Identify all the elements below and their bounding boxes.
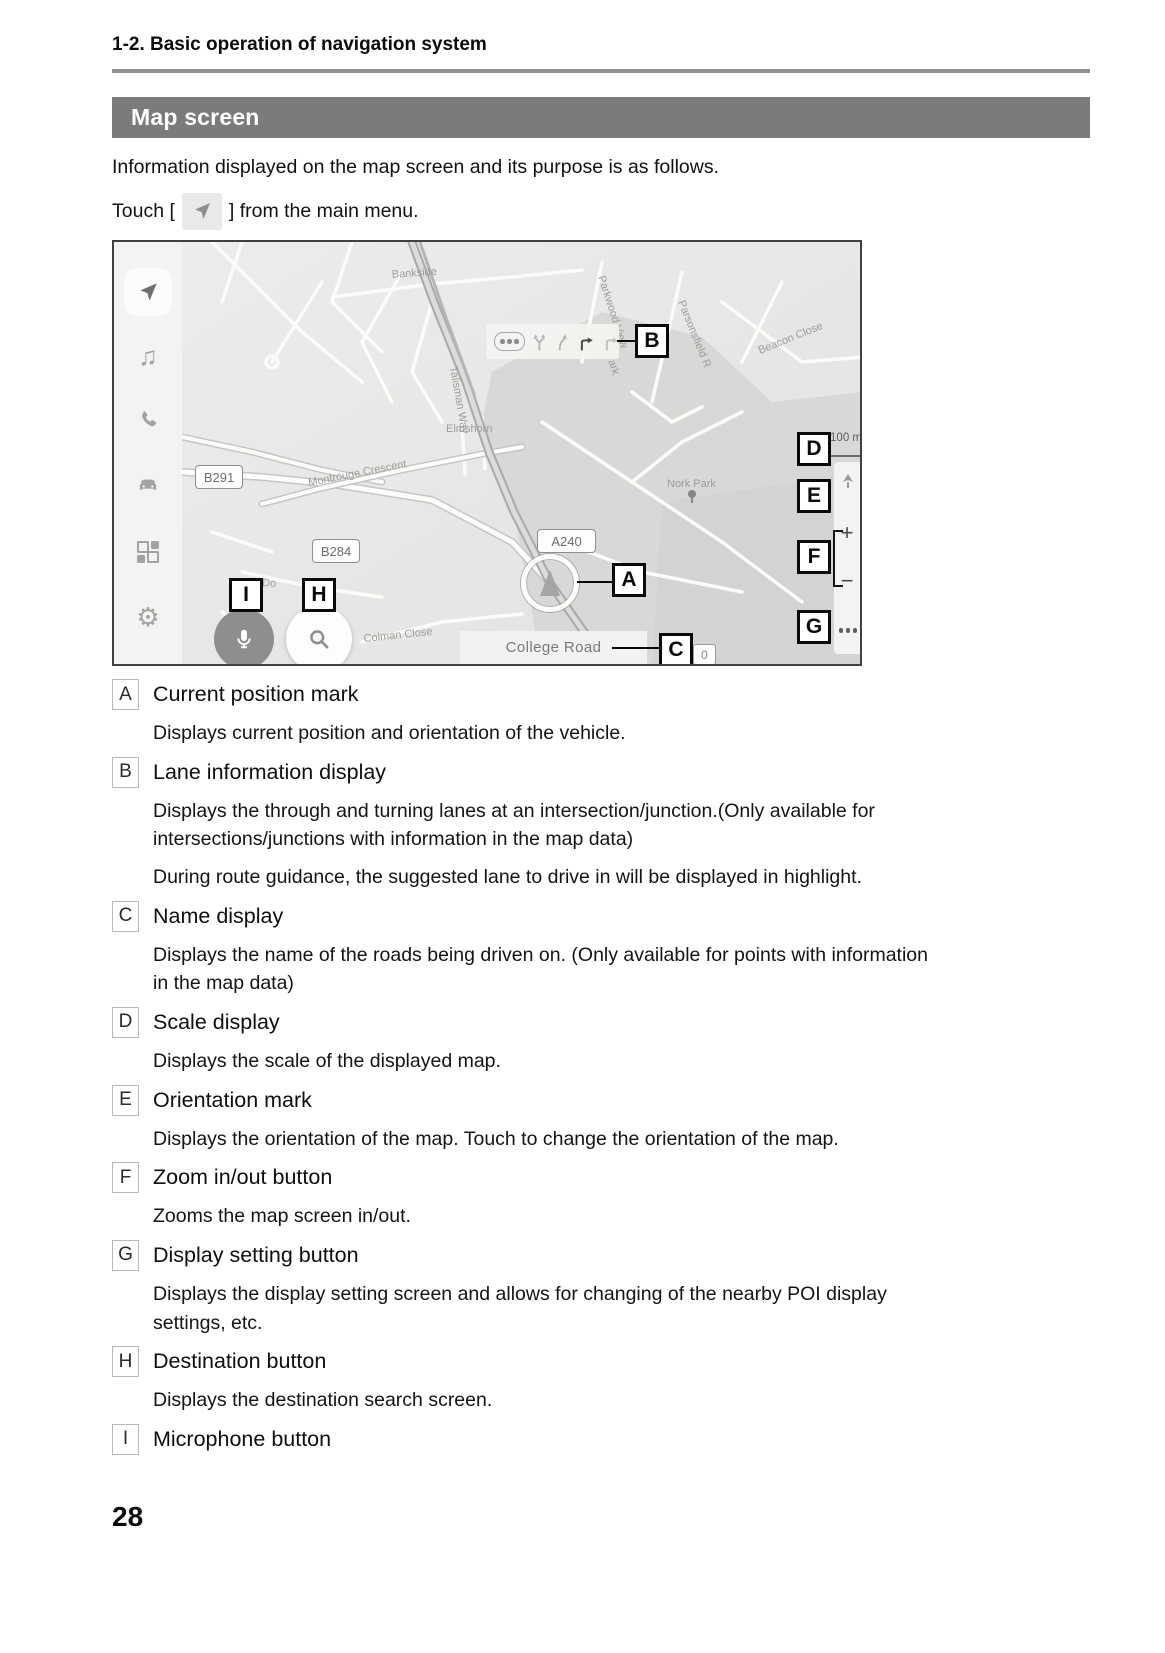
section-banner: Map screen [112, 97, 1090, 138]
banner-title: Map screen [112, 104, 260, 131]
legend-key-e: E [112, 1085, 139, 1116]
legend-key-a: A [112, 679, 139, 710]
legend-title-a: Current position mark [153, 682, 359, 707]
legend-title-e: Orientation mark [153, 1088, 312, 1113]
map-callout-e: E [797, 479, 831, 513]
page-number: 28 [112, 1501, 1090, 1533]
map-canvas: Bankside Talisman Way Montrouge Crescent… [182, 242, 862, 666]
legend-key-b: B [112, 757, 139, 788]
current-position-mark [521, 554, 579, 612]
legend-item-g: G Display setting button [112, 1240, 1090, 1271]
legend-title-b: Lane information display [153, 760, 386, 785]
legend-key-f: F [112, 1162, 139, 1193]
touch-text-after: ] from the main menu. [229, 200, 419, 223]
lane-fork-arrow-icon [531, 330, 548, 354]
road-label-b291: B291 [195, 465, 243, 489]
legend-desc: Displays the orientation of the map. Tou… [153, 1125, 948, 1154]
legend-desc: Zooms the map screen in/out. [153, 1202, 948, 1231]
callout-line-c [612, 647, 661, 649]
legend-key-c: C [112, 901, 139, 932]
lane-information-display [486, 324, 619, 359]
section-header: 1-2. Basic operation of navigation syste… [112, 34, 1090, 56]
map-callout-h: H [302, 578, 336, 612]
touch-text-before: Touch [ [112, 200, 175, 223]
display-setting-button[interactable] [835, 628, 861, 633]
legend-item-i: I Microphone button [112, 1424, 1090, 1455]
legend-key-i: I [112, 1424, 139, 1455]
navigation-arrow-icon [182, 193, 222, 230]
page-content: 1-2. Basic operation of navigation syste… [112, 0, 1090, 1533]
position-arrow-icon [540, 570, 560, 596]
map-screenshot-figure: Bankside Talisman Way Montrouge Crescent… [112, 240, 862, 666]
legend-title-d: Scale display [153, 1010, 280, 1035]
apps-icon[interactable] [124, 528, 172, 576]
map-callout-c: C [659, 633, 693, 666]
microphone-button[interactable] [214, 609, 274, 666]
legend-item-e: E Orientation mark [112, 1085, 1090, 1116]
map-callout-a: A [612, 563, 646, 597]
legend-key-d: D [112, 1007, 139, 1038]
zoom-bracket [833, 530, 843, 587]
lane-more-icon [494, 332, 525, 351]
destination-button[interactable] [286, 606, 352, 666]
legend-desc: Displays the through and turning lanes a… [153, 797, 948, 854]
callout-line-a [577, 581, 614, 583]
intro-text: Information displayed on the map screen … [112, 156, 1090, 179]
orientation-mark[interactable] [841, 474, 855, 495]
legend-item-a: A Current position mark [112, 679, 1090, 710]
navigation-icon[interactable] [124, 268, 172, 316]
legend-item-d: D Scale display [112, 1007, 1090, 1038]
legend-list: A Current position mark Displays current… [112, 679, 1090, 1455]
callout-line-b [617, 340, 637, 342]
lane-right-turn-arrow-highlighted-icon [576, 330, 594, 354]
search-icon [305, 625, 333, 653]
legend-title-h: Destination button [153, 1349, 326, 1374]
legend-desc: Displays the destination search screen. [153, 1386, 948, 1415]
legend-desc: Displays the name of the roads being dri… [153, 941, 948, 998]
map-callout-f: F [797, 540, 831, 574]
legend-item-c: C Name display [112, 901, 1090, 932]
legend-desc: Displays the display setting screen and … [153, 1280, 948, 1337]
legend-item-f: F Zoom in/out button [112, 1162, 1090, 1193]
music-icon[interactable]: ♫ [124, 332, 172, 380]
legend-key-g: G [112, 1240, 139, 1271]
legend-desc: Displays the scale of the displayed map. [153, 1047, 948, 1076]
microphone-icon [231, 626, 257, 652]
map-callout-g: G [797, 610, 831, 644]
legend-title-i: Microphone button [153, 1427, 331, 1452]
legend-key-h: H [112, 1346, 139, 1377]
legend-desc: During route guidance, the suggested lan… [153, 863, 948, 892]
road-label-b284: B284 [312, 539, 360, 563]
settings-icon[interactable]: ⚙ [124, 593, 172, 641]
main-menu-sidebar: ♫ ⚙ [114, 242, 182, 664]
road-name: Do [262, 577, 277, 590]
legend-desc: Displays current position and orientatio… [153, 719, 948, 748]
legend-item-h: H Destination button [112, 1346, 1090, 1377]
scale-bar [828, 448, 860, 457]
legend-title-c: Name display [153, 904, 283, 929]
phone-icon[interactable] [124, 396, 172, 444]
map-callout-b: B [635, 324, 669, 358]
car-icon[interactable] [124, 461, 172, 509]
road-label-a240: A240 [537, 529, 596, 553]
counter-badge: 0 [693, 644, 716, 665]
manual-page: 1-2. Basic operation of navigation syste… [0, 0, 1165, 1653]
map-callout-d: D [797, 432, 831, 466]
legend-title-f: Zoom in/out button [153, 1165, 332, 1190]
header-rule [112, 69, 1090, 73]
legend-item-b: B Lane information display [112, 757, 1090, 788]
legend-title-g: Display setting button [153, 1243, 359, 1268]
road-name: Elmshorn [446, 423, 492, 435]
road-name: Nork Park [667, 478, 716, 490]
lane-slight-right-arrow-icon [553, 330, 570, 354]
map-callout-i: I [229, 578, 263, 612]
touch-instruction: Touch [ ] from the main menu. [112, 191, 1090, 231]
